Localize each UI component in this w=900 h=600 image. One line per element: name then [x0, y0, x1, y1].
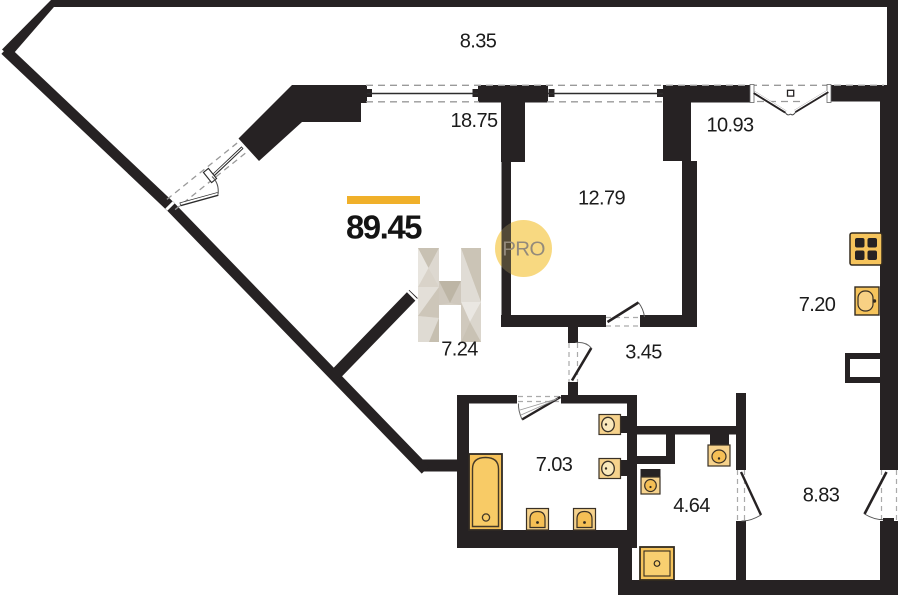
svg-text:18.75: 18.75 [450, 110, 498, 132]
svg-text:10.93: 10.93 [706, 115, 754, 137]
svg-text:7.03: 7.03 [536, 454, 573, 476]
svg-text:7.20: 7.20 [799, 294, 836, 316]
svg-text:12.79: 12.79 [578, 188, 626, 210]
svg-text:8.35: 8.35 [460, 31, 497, 53]
svg-text:3.45: 3.45 [625, 342, 662, 364]
svg-text:89.45: 89.45 [346, 209, 422, 246]
svg-text:8.83: 8.83 [803, 485, 840, 507]
svg-text:PRO: PRO [502, 238, 545, 261]
svg-text:4.64: 4.64 [673, 495, 710, 517]
svg-text:7.24: 7.24 [441, 339, 478, 361]
